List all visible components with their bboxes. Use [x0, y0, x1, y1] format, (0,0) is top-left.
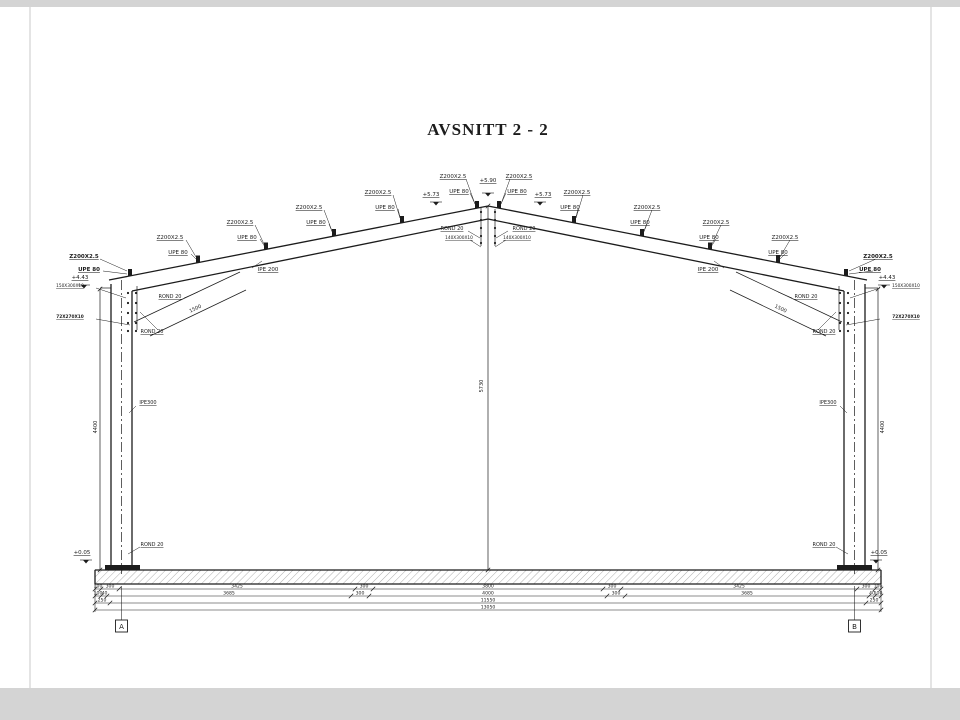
- brace-dim-label: 1500: [773, 304, 787, 315]
- bolt-dot: [127, 302, 129, 304]
- bolt-dot: [494, 235, 496, 237]
- rod-label: ROND 20: [141, 542, 164, 548]
- leader-line: [846, 319, 880, 325]
- dim-label: 300: [356, 591, 365, 597]
- purlin-label: UPE 80: [859, 267, 881, 273]
- bolt-dot: [135, 302, 137, 304]
- bolt-dot: [847, 330, 849, 332]
- leader-line: [100, 259, 127, 271]
- dim-label: 250: [870, 598, 879, 604]
- elevation-marker: [485, 193, 491, 197]
- plate-label: 140X300X10: [445, 235, 473, 241]
- dim-label: 3800: [482, 584, 494, 590]
- leader-line: [398, 209, 401, 221]
- plate-label: 72X270X10: [892, 314, 920, 320]
- purlin-label: Z200X2.5: [772, 235, 799, 241]
- grid-letter: B: [852, 623, 857, 631]
- bolt-dot: [494, 227, 496, 229]
- purlin-label: Z200X2.5: [365, 190, 392, 196]
- leader-line: [778, 292, 792, 298]
- dim-label: 3685: [741, 591, 753, 597]
- height-dim-label: 4400: [93, 421, 99, 434]
- dim-label: 300: [106, 584, 115, 590]
- steel-mark: [105, 565, 140, 570]
- bolt-dot: [135, 312, 137, 314]
- elevation-label: +0.05: [871, 550, 888, 556]
- leader-line: [495, 240, 506, 247]
- leader-line: [500, 193, 506, 206]
- bolt-dot: [839, 302, 841, 304]
- frame-line: [488, 206, 867, 280]
- steel-mark: [844, 269, 848, 276]
- height-dim-label: 5730: [479, 380, 485, 393]
- purlin-label: Z200X2.5: [506, 174, 533, 180]
- steel-mark: [475, 201, 479, 208]
- rod-label: ROND 20: [141, 329, 164, 335]
- bolt-dot: [127, 312, 129, 314]
- rod-label: ROND 20: [441, 226, 464, 232]
- leader-line: [470, 240, 481, 247]
- steel-mark: [497, 201, 501, 208]
- frame-line: [109, 206, 488, 280]
- purlin-label: UPE 80: [237, 235, 257, 241]
- rod-label: ROND 20: [813, 329, 836, 335]
- purlin-label: Z200X2.5: [440, 174, 467, 180]
- leader-line: [836, 547, 848, 554]
- purlin-label: Z200X2.5: [703, 220, 730, 226]
- bolt-dot: [847, 312, 849, 314]
- bolt-dot: [480, 211, 482, 213]
- purlin-label: UPE 80: [449, 189, 469, 195]
- foundation-hatch: [95, 570, 881, 584]
- purlin-label: Z200X2.5: [227, 220, 254, 226]
- bolt-dot: [847, 302, 849, 304]
- bolt-dot: [847, 322, 849, 324]
- rafter-profile-label: IPE 200: [698, 267, 719, 273]
- bolt-dot: [494, 242, 496, 244]
- dim-label: 40: [102, 591, 108, 597]
- purlin-label: UPE 80: [630, 220, 650, 226]
- elevation-label: +4.43: [72, 275, 89, 281]
- column-profile-label: IPE300: [819, 400, 836, 406]
- elevation-marker: [83, 560, 89, 564]
- dim-label: 100: [94, 584, 103, 590]
- plate-label: 72X270X10: [56, 314, 84, 320]
- bolt-dot: [839, 322, 841, 324]
- bolt-dot: [127, 322, 129, 324]
- elevation-marker: [433, 202, 439, 206]
- dim-label: 250: [98, 598, 107, 604]
- purlin-label: Z200X2.5: [564, 190, 591, 196]
- grid-letter: A: [119, 623, 124, 631]
- purlin-label: Z200X2.5: [863, 254, 893, 260]
- leader-line: [96, 319, 130, 325]
- leader-line: [184, 292, 198, 298]
- purlin-label: Z200X2.5: [157, 235, 184, 241]
- purlin-label: UPE 80: [375, 205, 395, 211]
- bolt-dot: [839, 312, 841, 314]
- dim-label: 3685: [223, 591, 235, 597]
- dim-label: 300: [612, 591, 621, 597]
- plate-label: 150X300X10: [892, 283, 920, 289]
- purlin-label: Z200X2.5: [634, 205, 661, 211]
- dim-label: 4000: [482, 591, 494, 597]
- column-profile-label: IPE300: [139, 400, 156, 406]
- bolt-dot: [494, 211, 496, 213]
- steel-mark: [128, 269, 132, 276]
- bolt-dot: [494, 219, 496, 221]
- elevation-marker: [881, 285, 887, 289]
- bolt-dot: [127, 330, 129, 332]
- elevation-label: +5.90: [480, 178, 497, 184]
- dim-label: 300: [608, 584, 617, 590]
- bolt-dot: [839, 292, 841, 294]
- purlin-label: Z200X2.5: [69, 254, 99, 260]
- rod-label: ROND 20: [813, 542, 836, 548]
- sheet-band: [0, 0, 960, 7]
- sheet-band: [0, 688, 960, 720]
- dim-label: 300: [862, 584, 871, 590]
- elevation-label: +4.43: [879, 275, 896, 281]
- rod-label: ROND 20: [159, 294, 182, 300]
- dim-label: 3425: [733, 584, 745, 590]
- plate-label: 140X300X10: [503, 235, 531, 241]
- bolt-dot: [847, 292, 849, 294]
- dim-label: 100: [874, 584, 883, 590]
- height-dim-label: 4400: [880, 421, 886, 434]
- purlin-label: UPE 80: [168, 250, 188, 256]
- rod-label: ROND 20: [795, 294, 818, 300]
- drawing-sheet: AVSNITT 2 - 2 Z200X2.5UPE 80Z200X2.5UPE …: [0, 0, 960, 720]
- dim-label: 3425: [231, 584, 243, 590]
- elevation-marker: [537, 202, 543, 206]
- leader-line: [470, 193, 476, 206]
- elevation-label: +5.73: [423, 192, 440, 198]
- bolt-dot: [480, 227, 482, 229]
- purlin-label: UPE 80: [768, 250, 788, 256]
- bolt-dot: [135, 322, 137, 324]
- bolt-dot: [480, 219, 482, 221]
- purlin-label: Z200X2.5: [296, 205, 323, 211]
- purlin-label: UPE 80: [306, 220, 326, 226]
- dim-label: 300: [360, 584, 369, 590]
- dim-label: 11550: [481, 598, 496, 604]
- steel-mark: [776, 256, 780, 263]
- elevation-label: +5.73: [535, 192, 552, 198]
- purlin-label: UPE 80: [78, 267, 100, 273]
- leader-line: [128, 547, 140, 554]
- dim-label: 13050: [481, 605, 496, 611]
- bolt-dot: [135, 330, 137, 332]
- leader-line: [103, 271, 127, 274]
- steel-mark: [196, 256, 200, 263]
- frame-line: [488, 219, 844, 291]
- bolt-dot: [480, 242, 482, 244]
- brace-dim-label: 1500: [189, 304, 203, 315]
- purlin-label: UPE 80: [699, 235, 719, 241]
- dim-label: 100: [874, 591, 883, 597]
- bolt-dot: [127, 292, 129, 294]
- cad-section-drawing: Z200X2.5UPE 80Z200X2.5UPE 80Z200X2.5UPE …: [0, 0, 960, 720]
- plate-label: 150X300X10: [56, 283, 84, 289]
- rod-label: ROND 20: [513, 226, 536, 232]
- elevation-label: +0.05: [74, 550, 91, 556]
- rafter-profile-label: IPE 200: [258, 267, 279, 273]
- purlin-label: UPE 80: [560, 205, 580, 211]
- bolt-dot: [839, 330, 841, 332]
- purlin-label: UPE 80: [507, 189, 527, 195]
- bolt-dot: [135, 292, 137, 294]
- bolt-dot: [480, 235, 482, 237]
